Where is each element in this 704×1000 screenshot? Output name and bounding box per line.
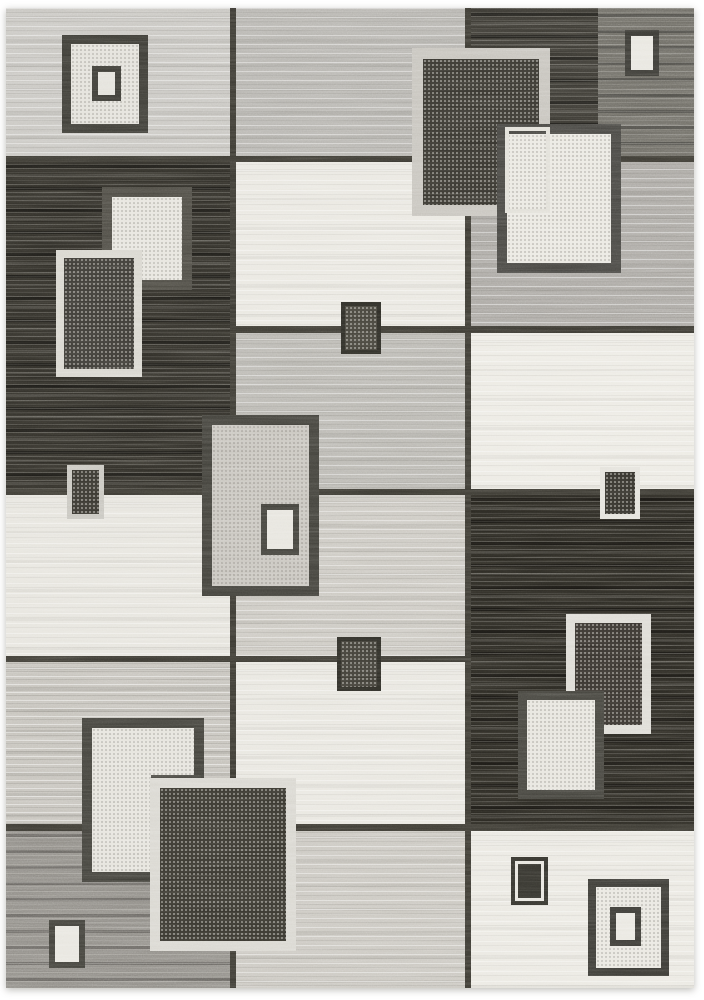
motif-small-dark-rect-bottom <box>511 857 548 905</box>
seam-horizontal-3 <box>6 489 694 495</box>
motif-small-ivory-rect-tr <box>625 30 659 76</box>
motif-outline-square-left <box>56 250 142 377</box>
motif-small-ivory-rect-bl <box>49 920 85 968</box>
seam-horizontal-2 <box>233 326 694 333</box>
motif-inner-ivory-rect-center <box>261 504 299 555</box>
motif-outline-rect-tr <box>505 127 550 213</box>
motif-bordered-rect-left <box>67 465 104 519</box>
motif-charcoal-box-bl <box>150 778 296 951</box>
motif-small-square-mid-lower <box>337 637 381 691</box>
motif-nested-square-inner-br <box>610 907 641 946</box>
patch-right-ivory-band <box>468 331 694 493</box>
seam-horizontal-4 <box>6 656 468 662</box>
rug-product-photo <box>0 0 704 1000</box>
motif-bordered-rect-right <box>600 467 640 519</box>
motif-small-square-mid-upper <box>341 302 381 354</box>
motif-nested-square-inner-tl <box>92 66 121 101</box>
patch-left-ivory <box>6 493 233 660</box>
motif-ivory-box-right <box>518 691 604 799</box>
